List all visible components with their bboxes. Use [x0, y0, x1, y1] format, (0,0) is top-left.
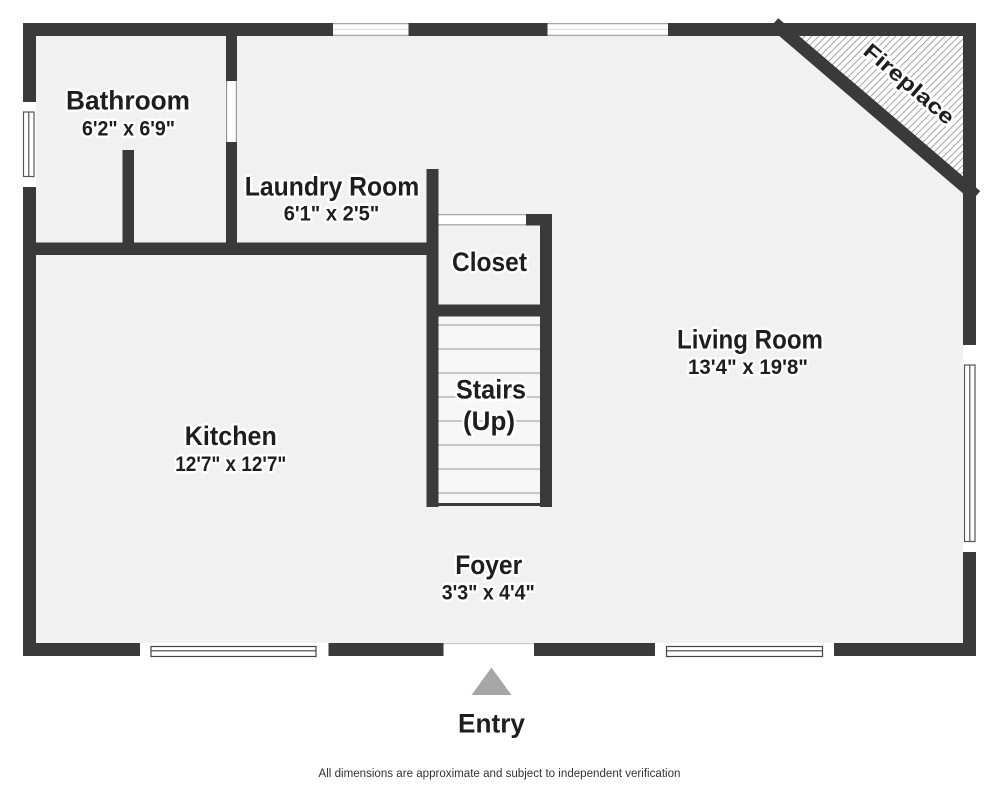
svg-text:Entry: Entry [458, 709, 525, 739]
svg-text:Stairs: Stairs [456, 375, 526, 405]
svg-text:Kitchen: Kitchen [185, 421, 277, 451]
svg-text:13'4" x 19'8": 13'4" x 19'8" [688, 356, 808, 379]
svg-text:Bathroom: Bathroom [66, 86, 190, 116]
svg-text:Closet: Closet [452, 247, 527, 277]
svg-text:6'1" x 2'5": 6'1" x 2'5" [284, 203, 380, 226]
svg-text:Laundry Room: Laundry Room [245, 172, 420, 202]
svg-text:All dimensions are approximate: All dimensions are approximate and subje… [319, 768, 681, 780]
svg-text:Foyer: Foyer [455, 550, 522, 580]
svg-text:Living Room: Living Room [677, 325, 823, 355]
svg-text:12'7" x 12'7": 12'7" x 12'7" [175, 453, 286, 476]
svg-text:(Up): (Up) [463, 406, 515, 436]
svg-text:3'3" x 4'4": 3'3" x 4'4" [442, 581, 535, 604]
svg-text:6'2" x 6'9": 6'2" x 6'9" [82, 118, 175, 141]
